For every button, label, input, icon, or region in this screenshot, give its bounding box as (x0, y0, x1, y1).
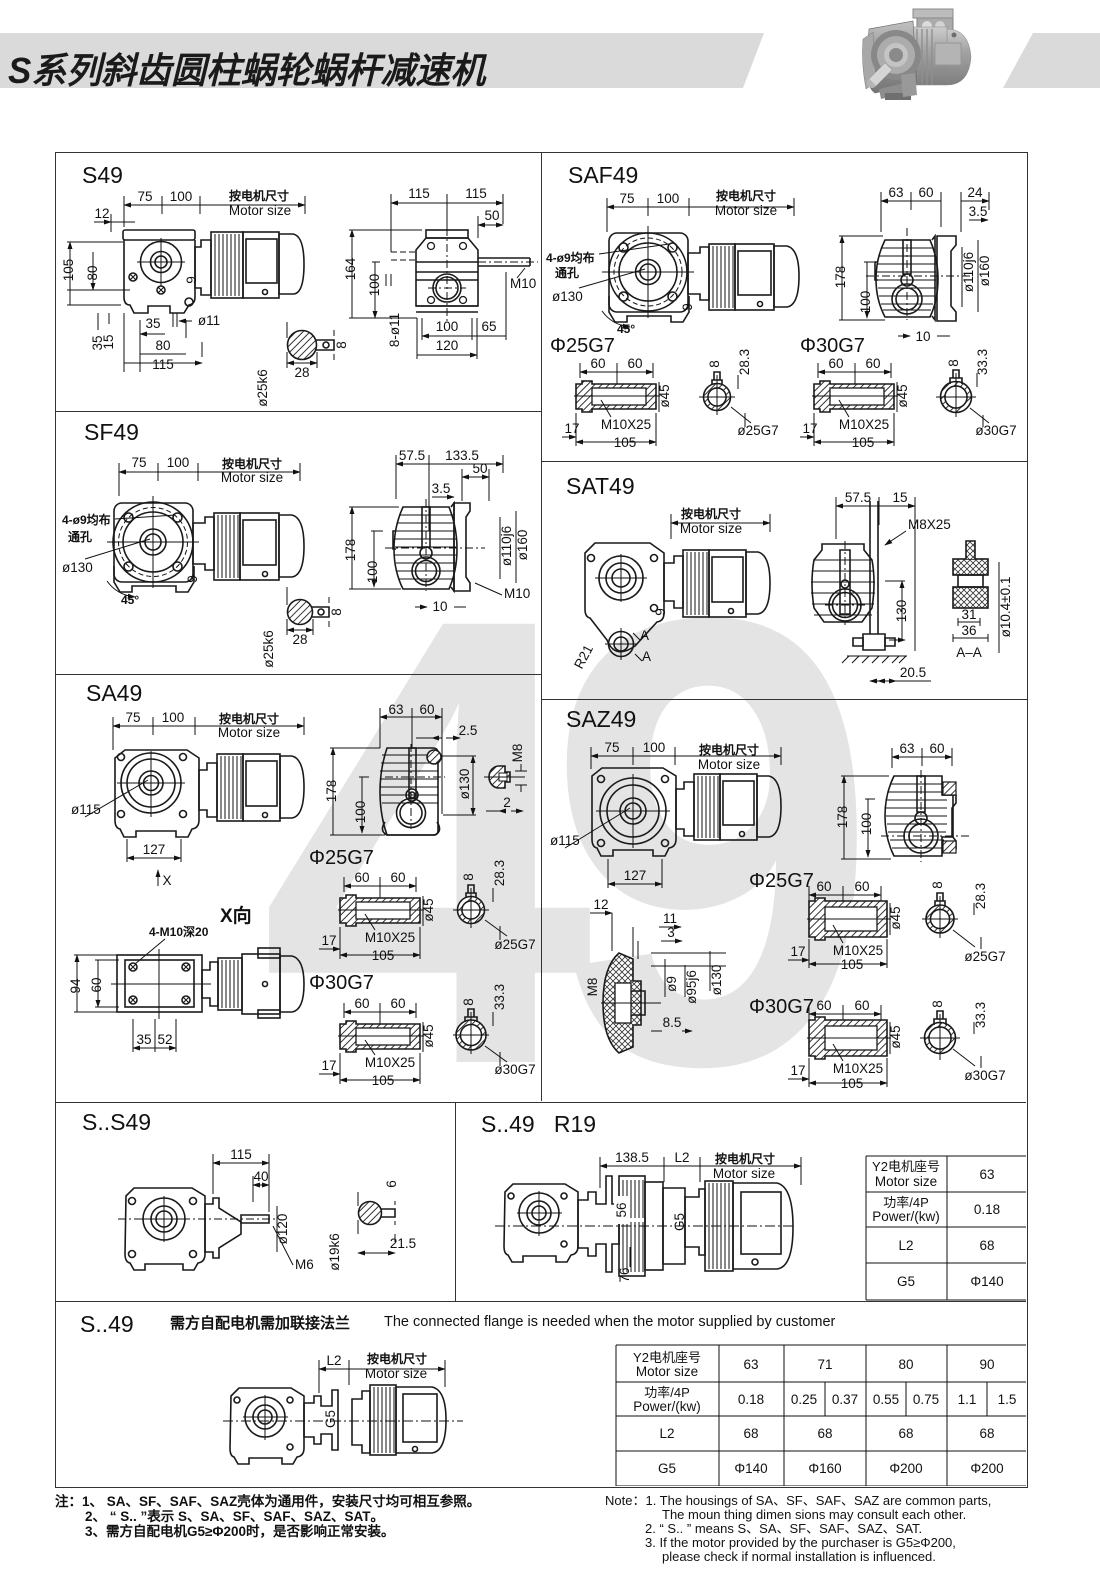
svg-text:M10X25: M10X25 (833, 943, 883, 958)
svg-text:ø30G7: ø30G7 (975, 423, 1016, 438)
svg-text:17: 17 (564, 421, 579, 436)
svg-text:8: 8 (946, 359, 961, 367)
svg-text:60: 60 (354, 996, 369, 1011)
svg-text:M10X25: M10X25 (839, 417, 889, 432)
svg-text:75: 75 (604, 740, 619, 755)
svg-text:9: 9 (653, 608, 668, 616)
svg-text:8: 8 (707, 360, 722, 368)
svg-text:通孔: 通孔 (555, 265, 579, 280)
svg-text:178: 178 (324, 780, 339, 803)
svg-text:S..49 R19: S..49 R19 (481, 1111, 596, 1137)
svg-text:按电机尺寸: 按电机尺寸 (229, 188, 289, 203)
svg-text:100: 100 (167, 455, 190, 470)
svg-text:4-ø9均布: 4-ø9均布 (62, 512, 111, 527)
svg-text:M10X25: M10X25 (365, 1055, 415, 1070)
svg-text:Φ30G7: Φ30G7 (800, 335, 865, 357)
svg-text:60: 60 (627, 356, 642, 371)
svg-text:ø25G7: ø25G7 (737, 423, 778, 438)
svg-text:ø25k6: ø25k6 (261, 630, 276, 668)
svg-text:Power/(kw): Power/(kw) (872, 1209, 940, 1224)
svg-text:Φ30G7: Φ30G7 (749, 996, 814, 1018)
svg-text:0.18: 0.18 (738, 1392, 764, 1407)
svg-text:35: 35 (145, 316, 160, 331)
svg-text:Φ140: Φ140 (734, 1461, 767, 1476)
svg-text:G5: G5 (658, 1461, 676, 1476)
svg-text:63: 63 (899, 741, 914, 756)
svg-text:Motor size: Motor size (875, 1174, 937, 1189)
svg-text:1.5: 1.5 (998, 1392, 1017, 1407)
svg-text:17: 17 (790, 944, 805, 959)
svg-text:G5: G5 (897, 1274, 915, 1289)
svg-text:M8X25: M8X25 (908, 517, 951, 532)
svg-text:ø130: ø130 (457, 769, 472, 800)
svg-text:M10: M10 (510, 276, 536, 291)
svg-text:3.5: 3.5 (969, 204, 988, 219)
svg-text:ø25k6: ø25k6 (255, 369, 270, 407)
svg-text:56: 56 (614, 1202, 629, 1217)
svg-text:75: 75 (137, 189, 152, 204)
svg-text:36: 36 (961, 623, 976, 638)
svg-text:Y2电机座号: Y2电机座号 (633, 1350, 701, 1365)
svg-text:60: 60 (854, 998, 869, 1013)
svg-text:ø95j6: ø95j6 (684, 970, 699, 1004)
svg-text:SA49: SA49 (86, 680, 142, 706)
svg-text:ø130: ø130 (552, 289, 583, 304)
svg-text:105: 105 (61, 259, 76, 282)
svg-text:60: 60 (419, 702, 434, 717)
svg-text:L2: L2 (898, 1238, 913, 1253)
svg-text:ø30G7: ø30G7 (964, 1068, 1005, 1083)
svg-text:60: 60 (828, 356, 843, 371)
svg-text:ø160: ø160 (977, 256, 992, 287)
svg-text:S..49: S..49 (80, 1311, 134, 1337)
svg-text:M6: M6 (295, 1257, 314, 1272)
svg-text:A: A (642, 649, 651, 664)
svg-text:127: 127 (624, 868, 647, 883)
svg-text:6: 6 (384, 1180, 399, 1188)
svg-text:60: 60 (590, 356, 605, 371)
svg-text:SAT49: SAT49 (566, 473, 635, 499)
svg-text:33.3: 33.3 (975, 349, 990, 375)
svg-text:15: 15 (892, 490, 907, 505)
svg-text:0.55: 0.55 (873, 1392, 899, 1407)
svg-text:9: 9 (680, 303, 695, 311)
svg-text:21.5: 21.5 (390, 1236, 416, 1251)
svg-text:L2: L2 (674, 1150, 689, 1165)
svg-text:31: 31 (961, 607, 976, 622)
svg-text:R21: R21 (571, 642, 596, 671)
svg-text:60: 60 (816, 998, 831, 1013)
svg-text:4-ø9均布: 4-ø9均布 (546, 250, 595, 265)
svg-text:60: 60 (929, 741, 944, 756)
svg-text:60: 60 (865, 356, 880, 371)
svg-text:按电机尺寸: 按电机尺寸 (219, 711, 279, 726)
svg-text:9: 9 (184, 276, 199, 284)
svg-text:68: 68 (979, 1238, 994, 1253)
svg-text:17: 17 (790, 1063, 805, 1078)
svg-text:50: 50 (484, 208, 499, 223)
svg-text:63: 63 (979, 1167, 994, 1182)
svg-text:115: 115 (152, 357, 174, 372)
svg-text:X向: X向 (220, 904, 252, 927)
svg-text:ø10.4±0.1: ø10.4±0.1 (998, 577, 1013, 638)
svg-text:8: 8 (461, 998, 476, 1006)
svg-text:4-M10深20: 4-M10深20 (149, 924, 209, 939)
svg-text:11: 11 (663, 911, 677, 926)
svg-text:33.3: 33.3 (492, 984, 507, 1010)
svg-text:G5: G5 (323, 1410, 338, 1428)
svg-text:按电机尺寸: 按电机尺寸 (716, 188, 776, 203)
svg-text:Φ25G7: Φ25G7 (309, 847, 374, 869)
svg-text:28.3: 28.3 (973, 883, 988, 909)
svg-text:Φ30G7: Φ30G7 (309, 972, 374, 994)
svg-text:ø110j6: ø110j6 (961, 252, 976, 292)
svg-text:75: 75 (131, 455, 146, 470)
svg-text:63: 63 (888, 185, 903, 200)
svg-text:按电机尺寸: 按电机尺寸 (367, 1351, 427, 1366)
svg-text:100: 100 (170, 189, 193, 204)
svg-text:100: 100 (657, 191, 680, 206)
svg-text:28.3: 28.3 (737, 349, 752, 375)
svg-text:X: X (162, 873, 171, 888)
svg-text:Φ160: Φ160 (808, 1461, 841, 1476)
svg-text:Φ200: Φ200 (970, 1461, 1003, 1476)
svg-text:115: 115 (465, 186, 487, 201)
svg-text:60: 60 (89, 977, 104, 992)
svg-text:100: 100 (436, 319, 459, 334)
svg-text:2: 2 (503, 795, 511, 810)
svg-text:M10X25: M10X25 (833, 1061, 883, 1076)
svg-text:10: 10 (432, 599, 447, 614)
svg-text:Motor size: Motor size (698, 757, 760, 772)
svg-text:Φ140: Φ140 (970, 1274, 1003, 1289)
svg-text:A: A (640, 628, 649, 643)
svg-text:120: 120 (436, 338, 459, 353)
svg-text:33.3: 33.3 (973, 1002, 988, 1028)
svg-text:100: 100 (643, 740, 666, 755)
svg-text:75: 75 (125, 710, 140, 725)
svg-text:2.5: 2.5 (459, 723, 478, 738)
svg-text:3.5: 3.5 (432, 481, 451, 496)
svg-text:SF49: SF49 (84, 419, 139, 445)
svg-text:60: 60 (816, 879, 831, 894)
svg-text:17: 17 (802, 421, 817, 436)
svg-text:ø25G7: ø25G7 (494, 937, 535, 952)
svg-text:ø115: ø115 (550, 833, 580, 848)
svg-text:ø110j6: ø110j6 (499, 526, 514, 566)
svg-text:8: 8 (334, 341, 349, 349)
svg-text:Motor size: Motor size (365, 1366, 427, 1381)
svg-text:功率/4P: 功率/4P (644, 1385, 690, 1400)
svg-text:100: 100 (353, 801, 368, 824)
svg-text:127: 127 (143, 842, 166, 857)
svg-text:通孔: 通孔 (68, 529, 92, 544)
svg-text:L2: L2 (326, 1353, 341, 1368)
svg-text:ø30G7: ø30G7 (494, 1062, 535, 1077)
svg-text:9: 9 (185, 575, 200, 583)
svg-text:8: 8 (329, 608, 344, 616)
svg-text:75: 75 (619, 191, 634, 206)
svg-text:0.25: 0.25 (791, 1392, 817, 1407)
svg-text:68: 68 (743, 1426, 758, 1441)
svg-text:Motor size: Motor size (218, 725, 280, 740)
svg-text:60: 60 (854, 879, 869, 894)
svg-text:S..S49: S..S49 (82, 1109, 151, 1135)
svg-text:需方自配电机需加联接法兰: 需方自配电机需加联接法兰 (170, 1314, 350, 1332)
svg-text:ø115: ø115 (71, 802, 101, 817)
svg-text:Motor size: Motor size (715, 203, 777, 218)
svg-text:Φ25G7: Φ25G7 (749, 870, 814, 892)
svg-text:45°: 45° (121, 593, 139, 607)
svg-text:8.5: 8.5 (663, 1015, 682, 1030)
svg-text:50: 50 (472, 461, 487, 476)
svg-text:17: 17 (321, 1058, 336, 1073)
svg-text:Motor size: Motor size (636, 1364, 698, 1379)
svg-text:ø130: ø130 (62, 560, 93, 575)
svg-text:Φ25G7: Φ25G7 (550, 335, 615, 357)
svg-text:Y2电机座号: Y2电机座号 (872, 1159, 940, 1174)
svg-text:100: 100 (162, 710, 185, 725)
svg-text:The connected flange is needed: The connected flange is needed when the … (384, 1314, 836, 1330)
svg-text:60: 60 (918, 185, 933, 200)
svg-text:L2: L2 (659, 1426, 674, 1441)
svg-text:100: 100 (858, 291, 873, 314)
svg-text:Power/(kw): Power/(kw) (633, 1399, 701, 1414)
svg-text:12: 12 (94, 206, 109, 221)
svg-text:ø25G7: ø25G7 (964, 949, 1005, 964)
svg-text:68: 68 (817, 1426, 832, 1441)
svg-text:ø130: ø130 (709, 965, 724, 996)
svg-text:164: 164 (343, 257, 358, 280)
svg-text:24: 24 (967, 185, 983, 200)
svg-text:57.5: 57.5 (845, 490, 871, 505)
svg-text:100: 100 (365, 561, 380, 584)
svg-text:Motor size: Motor size (713, 1166, 775, 1181)
svg-text:0.37: 0.37 (832, 1392, 858, 1407)
svg-text:1.1: 1.1 (958, 1392, 977, 1407)
svg-text:M8: M8 (510, 744, 525, 763)
svg-text:17: 17 (321, 933, 336, 948)
svg-text:12: 12 (593, 897, 608, 912)
svg-text:A–A: A–A (956, 645, 982, 660)
svg-text:63: 63 (388, 702, 403, 717)
svg-text:76: 76 (617, 1267, 632, 1282)
svg-text:M10X25: M10X25 (601, 417, 651, 432)
svg-text:40: 40 (253, 1169, 268, 1184)
svg-text:115: 115 (408, 186, 430, 201)
svg-text:8: 8 (461, 873, 476, 881)
svg-text:Φ200: Φ200 (889, 1461, 922, 1476)
svg-text:28: 28 (294, 365, 309, 380)
svg-text:68: 68 (979, 1426, 994, 1441)
svg-text:80: 80 (898, 1357, 913, 1372)
svg-text:SAF49: SAF49 (568, 162, 638, 188)
svg-text:按电机尺寸: 按电机尺寸 (681, 506, 741, 521)
svg-text:M10X25: M10X25 (365, 930, 415, 945)
svg-text:138.5: 138.5 (615, 1150, 649, 1165)
svg-text:按电机尺寸: 按电机尺寸 (699, 742, 759, 757)
svg-text:8: 8 (930, 1000, 945, 1008)
svg-text:63: 63 (743, 1357, 758, 1372)
svg-text:20.5: 20.5 (900, 665, 926, 680)
svg-text:ø160: ø160 (515, 530, 530, 561)
svg-text:3: 3 (667, 925, 675, 940)
svg-text:90: 90 (979, 1357, 994, 1372)
svg-text:M8: M8 (585, 978, 600, 997)
svg-text:178: 178 (833, 266, 848, 289)
svg-text:SAZ49: SAZ49 (566, 706, 636, 732)
svg-text:功率/4P: 功率/4P (883, 1195, 929, 1210)
svg-text:0.18: 0.18 (974, 1202, 1000, 1217)
svg-text:45°: 45° (617, 322, 635, 336)
svg-text:80: 80 (155, 338, 170, 353)
svg-text:ø11: ø11 (198, 313, 220, 328)
svg-text:ø9: ø9 (664, 976, 679, 992)
svg-text:60: 60 (354, 870, 369, 885)
svg-text:100: 100 (859, 813, 874, 836)
svg-text:115: 115 (230, 1147, 252, 1162)
svg-text:178: 178 (343, 539, 358, 562)
svg-text:ø19k6: ø19k6 (327, 1233, 342, 1271)
svg-text:65: 65 (481, 319, 496, 334)
svg-text:57.5: 57.5 (399, 448, 425, 463)
svg-text:60: 60 (390, 996, 405, 1011)
svg-text:52: 52 (157, 1032, 172, 1047)
svg-text:94: 94 (68, 978, 83, 994)
svg-text:10: 10 (915, 329, 930, 344)
svg-text:28: 28 (292, 632, 307, 647)
svg-text:按电机尺寸: 按电机尺寸 (222, 456, 282, 471)
svg-text:28.3: 28.3 (492, 860, 507, 886)
svg-text:按电机尺寸: 按电机尺寸 (715, 1151, 775, 1166)
svg-text:60: 60 (390, 870, 405, 885)
svg-text:8: 8 (930, 881, 945, 889)
svg-text:35: 35 (136, 1032, 151, 1047)
svg-text:M10: M10 (504, 586, 530, 601)
svg-text:68: 68 (898, 1426, 913, 1441)
svg-text:15: 15 (101, 334, 116, 349)
svg-text:178: 178 (835, 806, 850, 829)
svg-text:71: 71 (817, 1357, 832, 1372)
svg-text:0.75: 0.75 (913, 1392, 939, 1407)
svg-text:S49: S49 (82, 162, 123, 188)
